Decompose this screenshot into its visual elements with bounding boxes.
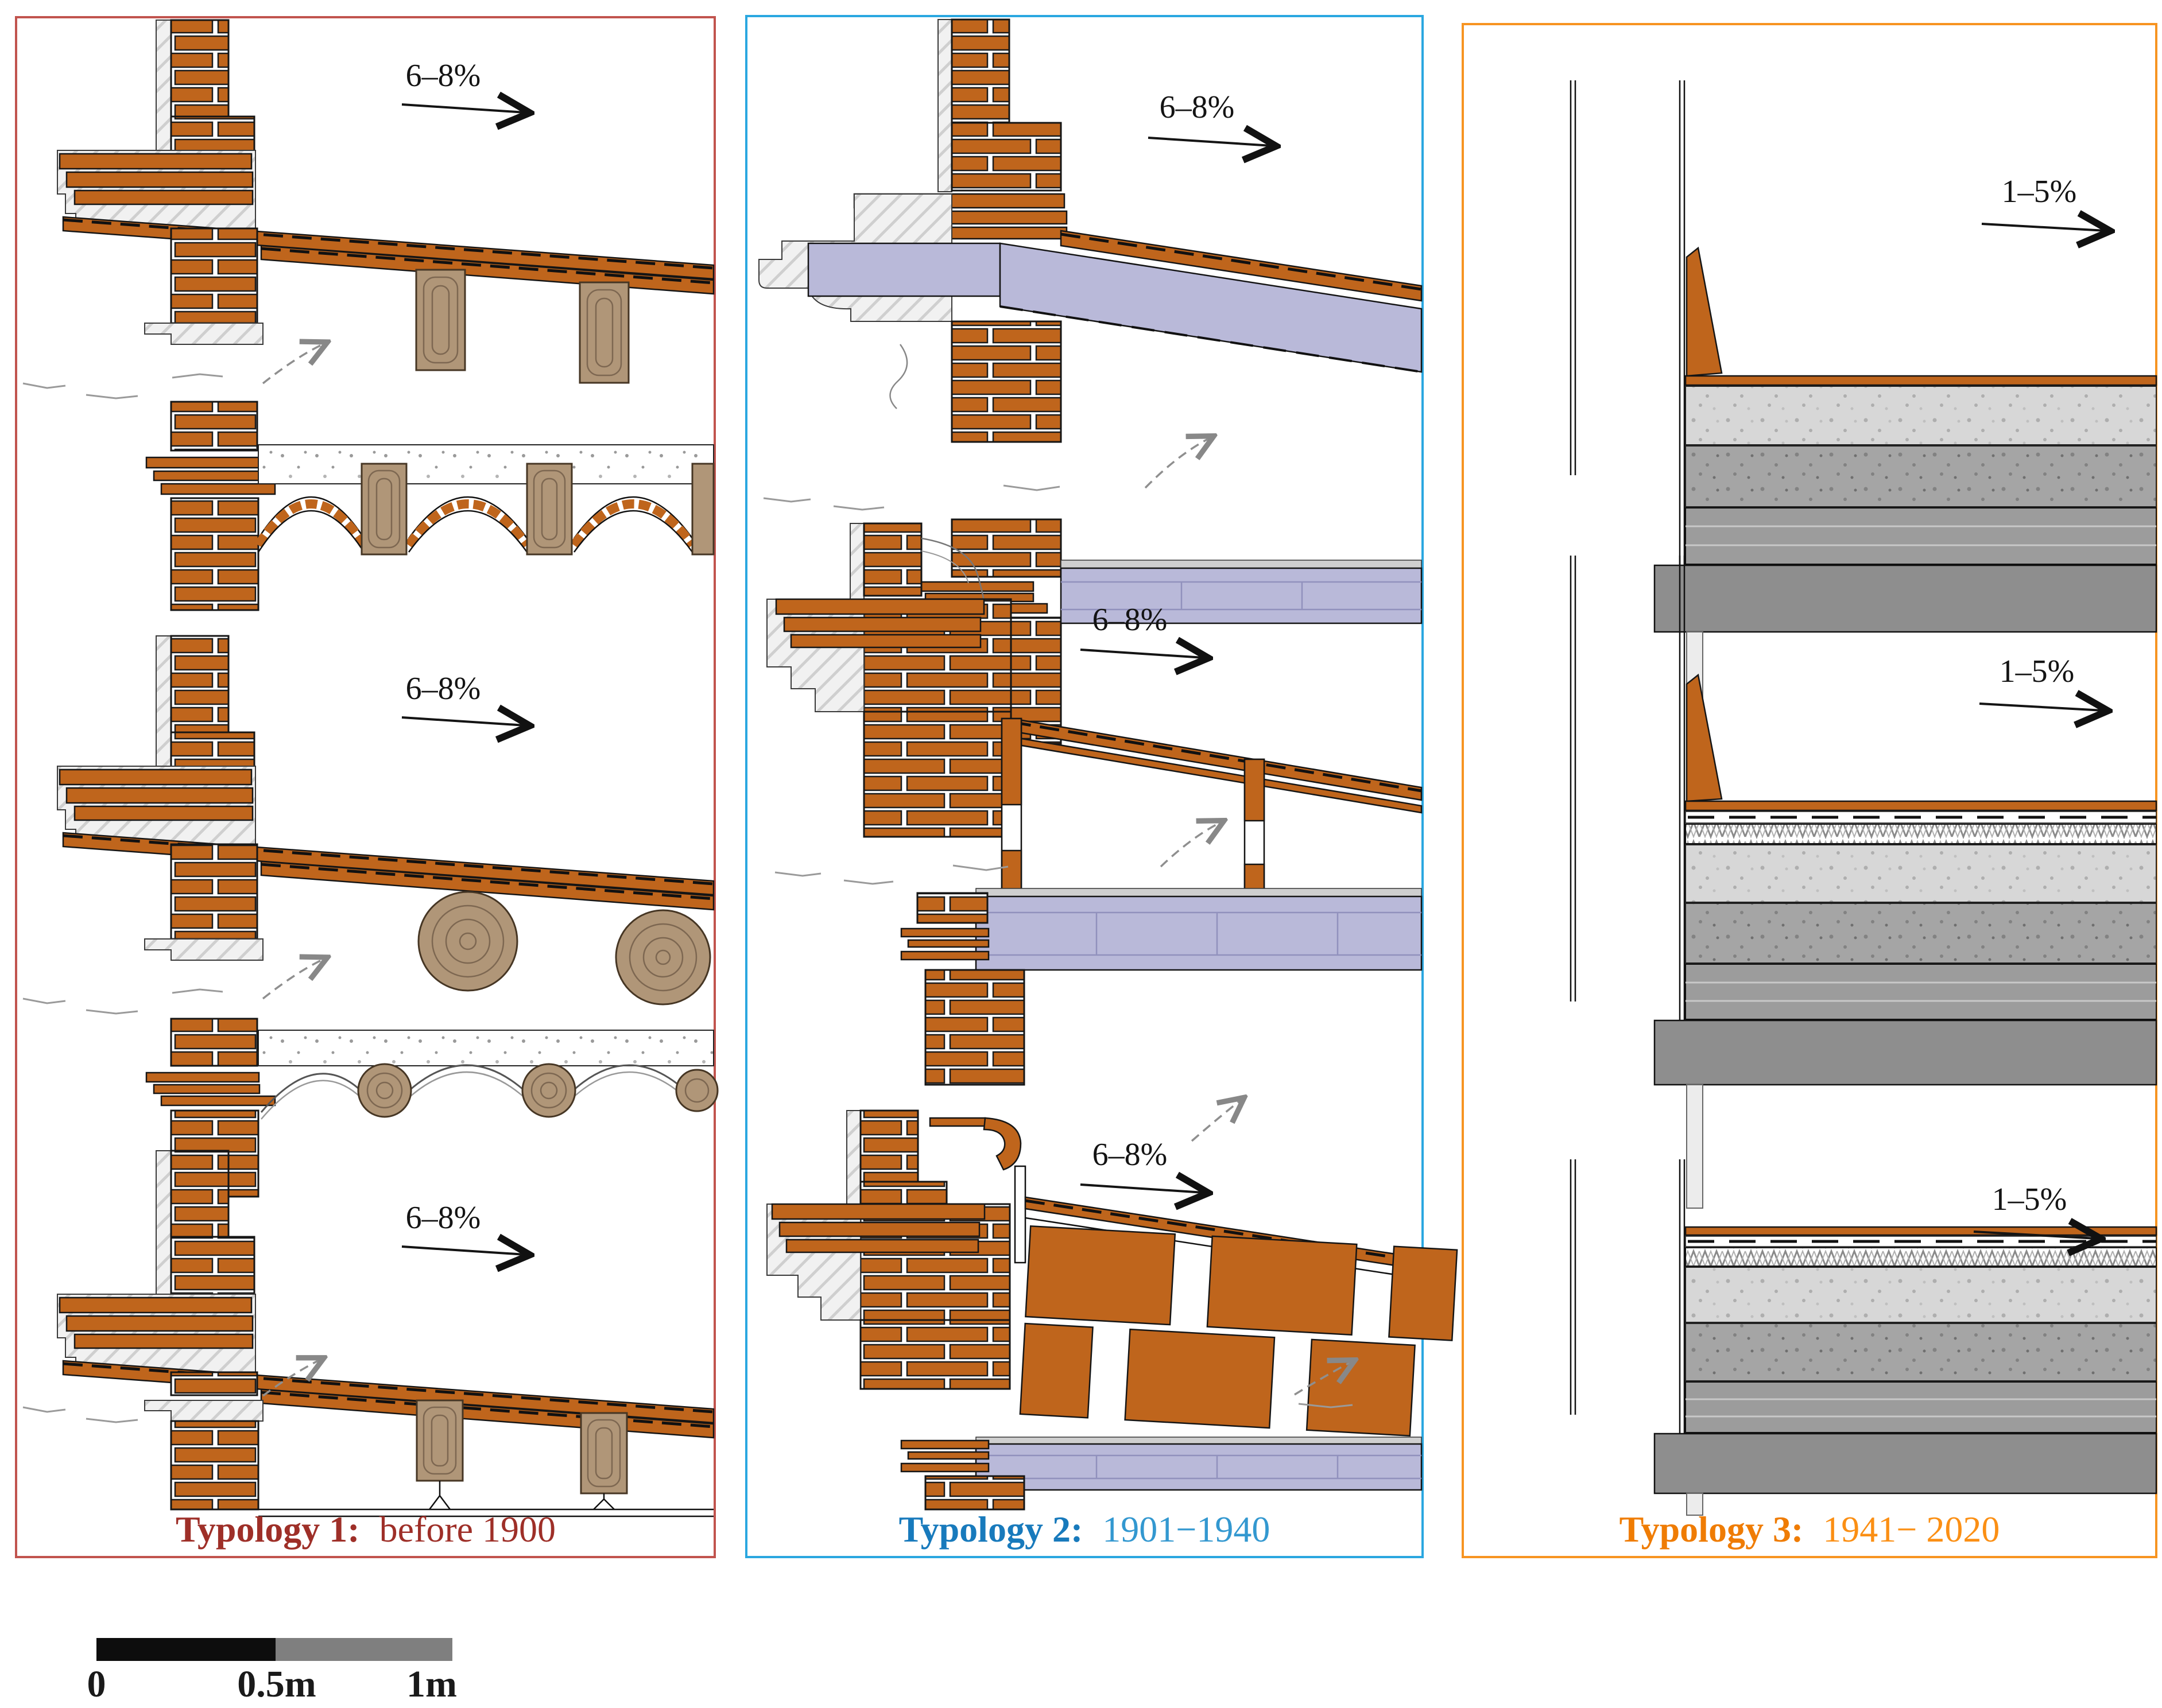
figure-canvas: 6–8% [0,0,2162,1708]
tile-joints [1012,722,1421,791]
brick-wall [171,20,228,117]
cornice-brick-band [780,1222,979,1236]
cornice-brick-band [772,1204,985,1219]
brick-wall [171,636,228,732]
cornice-brick-band [75,191,253,204]
tile-roof-layer [1012,719,1421,800]
scale-bar-black-segment [96,1638,276,1661]
plaster-strip [847,1111,861,1208]
slope-label: 6–8% [1092,602,1168,638]
screed-layer [1061,560,1421,568]
hollow-block [1207,1236,1357,1335]
brick-pier [1002,719,1021,896]
scale-bar: 0 0.5m 1m [87,1638,457,1705]
cornice-brick-band [75,1334,253,1348]
t1-detail-eaves-logs: 6–8% [23,636,718,1197]
cornice-brick-band [67,1316,253,1331]
slope-label: 6–8% [1092,1137,1168,1173]
brick-wall [171,1151,228,1237]
slope-label: 6–8% [406,1200,481,1236]
hollow-block-slab [976,1444,1421,1490]
wall-reference-lines [1571,80,1684,568]
brick-wall [171,1421,258,1509]
panel-typology-1: 6–8% [16,17,718,1557]
panel-2-title: Typology 2: 1901−1940 [899,1509,1270,1550]
scale-tick-half-meter: 0.5m [237,1663,316,1705]
plaster-vault [566,1065,692,1097]
brick-wall [861,1111,918,1182]
brick-wall [861,1320,1010,1389]
cornice-brick-band [791,635,981,647]
screed-layer [976,1437,1421,1444]
t1-detail-eaves-joists: 6–8% [23,20,714,610]
airflow-arrow [1161,823,1219,867]
wall-ledge [145,939,263,960]
plaster-strip [938,20,952,192]
slab-layer [1686,508,2156,564]
timber-joist [581,1413,627,1493]
brick-wall [171,1372,257,1395]
wall-ledge [145,1400,263,1421]
panel-3-title-bold: Typology 3: [1619,1509,1804,1550]
scale-bar-gray-segment [276,1638,452,1661]
sketch-line [86,1419,138,1422]
screed-layer [976,888,1421,896]
brick-wall [171,228,257,323]
hollow-block [1125,1329,1274,1428]
brick-wall [864,599,1011,712]
small-log [358,1064,411,1117]
panel-3-title-rest: 1941− 2020 [1823,1509,2000,1550]
slope-label: 6–8% [406,671,481,707]
round-log-joist [616,910,710,1004]
slope-arrow [1982,224,2106,231]
cornice-brick-band [776,599,984,614]
t3-detail-flat-roof-insulated: 1–5% [1571,556,2156,1208]
waterproofing-membrane [1686,1227,2156,1235]
panel-2-title-rest: 1901−1940 [1102,1509,1270,1550]
brick-arch-floor [146,402,714,610]
panel-2-title-bold: Typology 2: [899,1509,1083,1550]
sketch-line [834,506,884,510]
brick-wall [952,123,1061,191]
slope-arrow [402,104,525,112]
sketch-line [86,1010,138,1014]
small-log [522,1064,575,1117]
slope-screed-layer [1686,386,2156,445]
sketch-line [23,999,65,1003]
timber-joist [417,1400,463,1481]
sketch-line [172,374,223,378]
insulation-layer [1686,824,2156,844]
cornice-brick-band [67,788,253,803]
slope-screed-layer [1686,1267,2156,1322]
slope-label: 1–5% [2002,174,2077,209]
slope-arrow [402,1247,525,1255]
cornice-brick-band [75,806,253,820]
roof-batten [1012,737,1421,813]
slope-arrow [1979,704,2103,711]
vaulted-floor [146,1019,718,1197]
cornice-plaster [767,599,864,712]
timber-joist [580,282,629,383]
parapet-flashing [1687,675,1722,801]
small-log [676,1070,718,1111]
brick-wall [864,712,1011,837]
concrete-cornice-beam [808,243,1000,296]
timber-floor-beam [692,464,714,554]
slope-label: 1–5% [2000,654,2075,689]
slope-screed-layer [1686,845,2156,902]
panel-3-title: Typology 3: 1941− 2020 [1619,1509,2000,1550]
t3-detail-flat-roof-flush: 1–5% [1571,1159,2156,1515]
brick-wall [952,20,1009,123]
sketch-line [23,383,65,388]
sketch-line [86,395,138,398]
slope-arrow [402,717,525,725]
hollow-block-slab [976,896,1421,970]
scale-tick-0: 0 [87,1663,106,1705]
cornice-brick-band [60,154,251,169]
slab-layer [1686,1382,2156,1433]
t1-detail-eaves-suspended-ceiling: 6–8% [23,1151,714,1516]
airflow-arrow [1192,1101,1240,1141]
airflow-arrow [263,960,323,999]
plaster-strip [156,1151,171,1294]
plaster-vault [402,1065,532,1097]
brick-pier [1245,759,1264,896]
brick-wall [171,844,257,939]
sketch-line [764,498,811,502]
slope-label: 6–8% [406,58,481,94]
brick-wall [952,321,1061,442]
hollow-block [1020,1323,1093,1418]
slope-arrow [1148,138,1272,146]
plaster-drip-line [890,344,907,409]
hollow-block [1025,1226,1175,1325]
slope-arrow [1080,1185,1204,1193]
edge-beam [1655,1434,2156,1493]
waterproofing-membrane [1686,376,2156,385]
timber-joist [416,270,465,370]
hollow-block [1307,1340,1415,1436]
slope-arrow [1080,650,1204,658]
slope-label: 1–5% [1992,1182,2067,1217]
edge-beam [1655,565,2156,632]
cornice-brick-band [67,172,253,187]
t2-detail-hollow-blocks-roof: 6–8% [767,1101,1457,1509]
waterproofing-membrane [1686,801,2156,810]
vent-upstand [1015,1166,1025,1263]
wall-below [1687,1085,1703,1208]
sketch-line [844,880,893,884]
cornice-brick-band [60,770,251,785]
slab-layer [1686,964,2156,1019]
panel-1-title-rest: before 1900 [379,1509,556,1550]
concrete-fill [258,1030,714,1066]
scale-tick-one-meter: 1m [406,1663,457,1705]
brick-wall [864,523,921,596]
cornice-brick-band [60,1298,251,1313]
airflow-arrow [263,344,323,383]
insulation-layer [1686,1248,2156,1266]
construction-typologies-figure: 6–8% [0,0,2162,1708]
concrete-layer [1686,903,2156,963]
sketch-line [23,1407,65,1412]
sketch-line [172,989,223,993]
slope-label: 6–8% [1160,90,1235,125]
concrete-floor-slab [901,888,1421,1085]
cornice-plaster [767,1204,861,1320]
panel-typology-2: 6–8% [746,16,1457,1557]
airflow-arrow [1145,438,1209,488]
concrete-floor-slab [901,1437,1421,1509]
brick-wall [171,1237,254,1294]
cornice-brick-band [786,1240,978,1252]
round-log-joist [419,892,517,991]
plaster-vault [261,1074,367,1112]
concrete-fill [258,445,714,484]
sketch-line [1003,486,1060,490]
panel-1-title: Typology 1: before 1900 [176,1509,556,1550]
parapet-flashing [1687,248,1722,376]
panel-1-title-bold: Typology 1: [176,1509,360,1550]
panel-typology-3: 1–5% 1–5% [1463,24,2156,1557]
concrete-layer [1686,446,2156,507]
sketch-line [775,872,821,876]
gutter [984,1118,1021,1170]
hollow-block [1389,1247,1457,1341]
timber-floor-beam [527,464,572,554]
concrete-layer [1686,1323,2156,1381]
wall-ledge [145,323,263,344]
eaves-board [930,1118,985,1126]
cornice-brick-band [784,618,981,631]
timber-floor-beam [362,464,406,554]
edge-beam [1655,1020,2156,1085]
brick-wall [861,1204,1010,1320]
sketch-line [953,865,1008,870]
